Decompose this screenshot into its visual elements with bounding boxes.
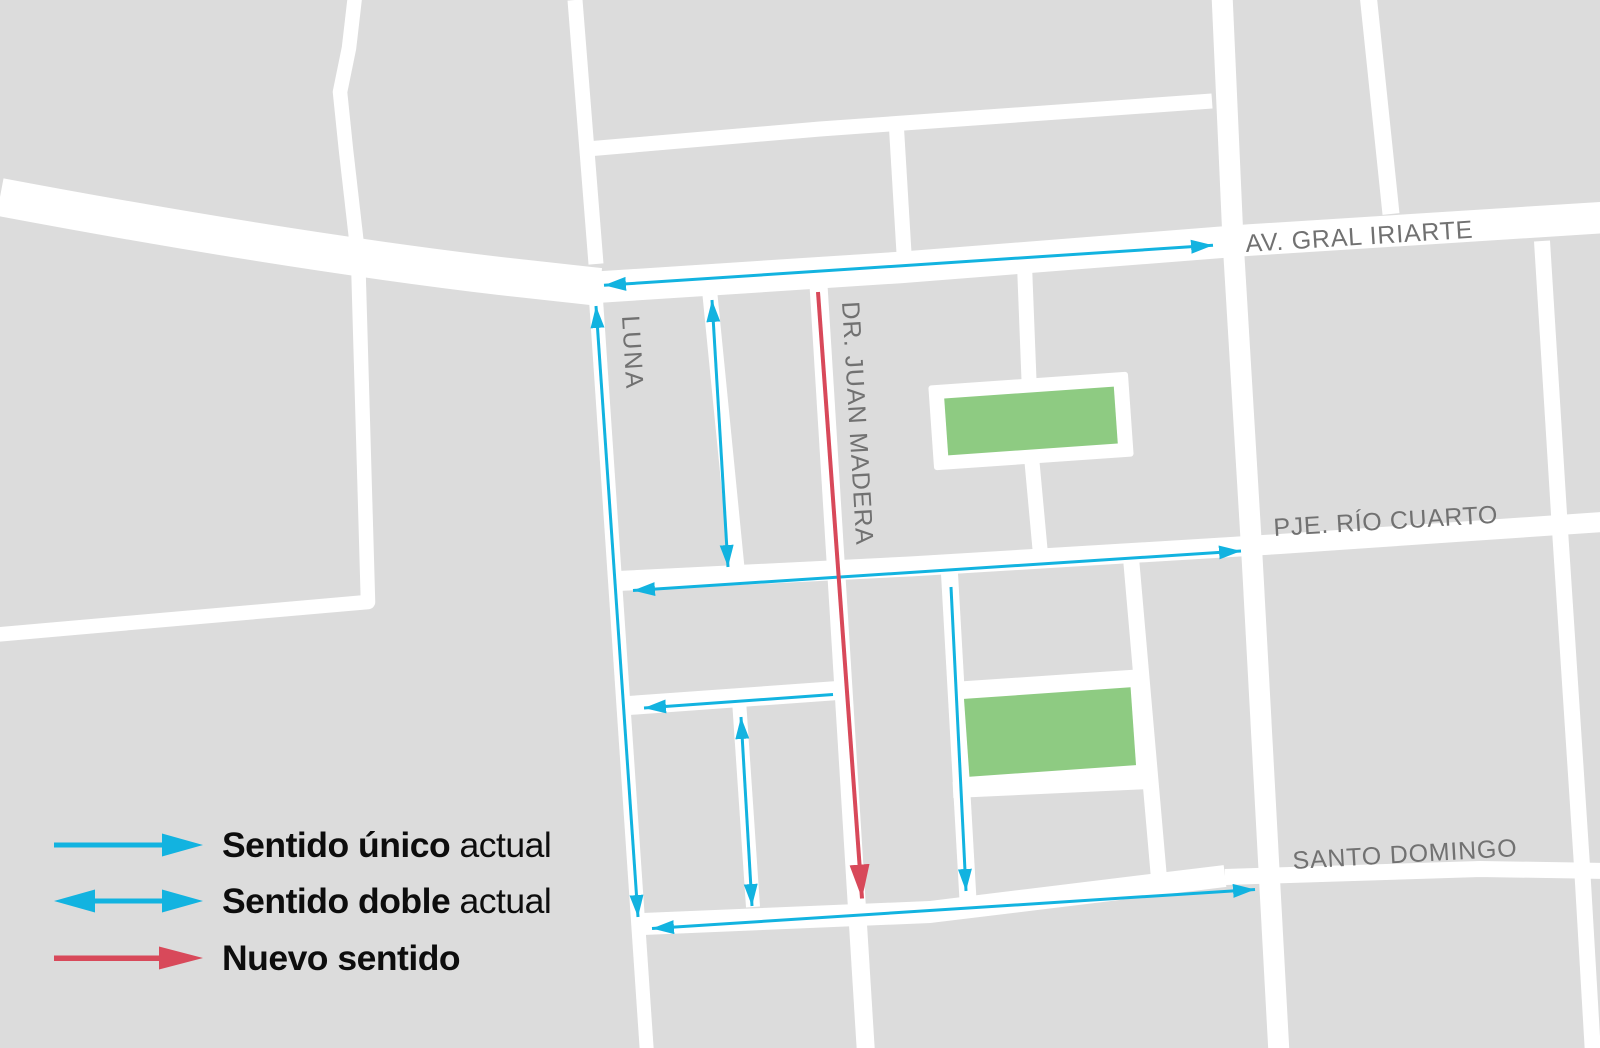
svg-text:LUNA: LUNA bbox=[616, 315, 649, 391]
svg-text:Sentido doble actual: Sentido doble actual bbox=[222, 881, 551, 921]
svg-text:Sentido único actual: Sentido único actual bbox=[222, 825, 551, 865]
svg-text:Nuevo sentido: Nuevo sentido bbox=[222, 938, 460, 978]
